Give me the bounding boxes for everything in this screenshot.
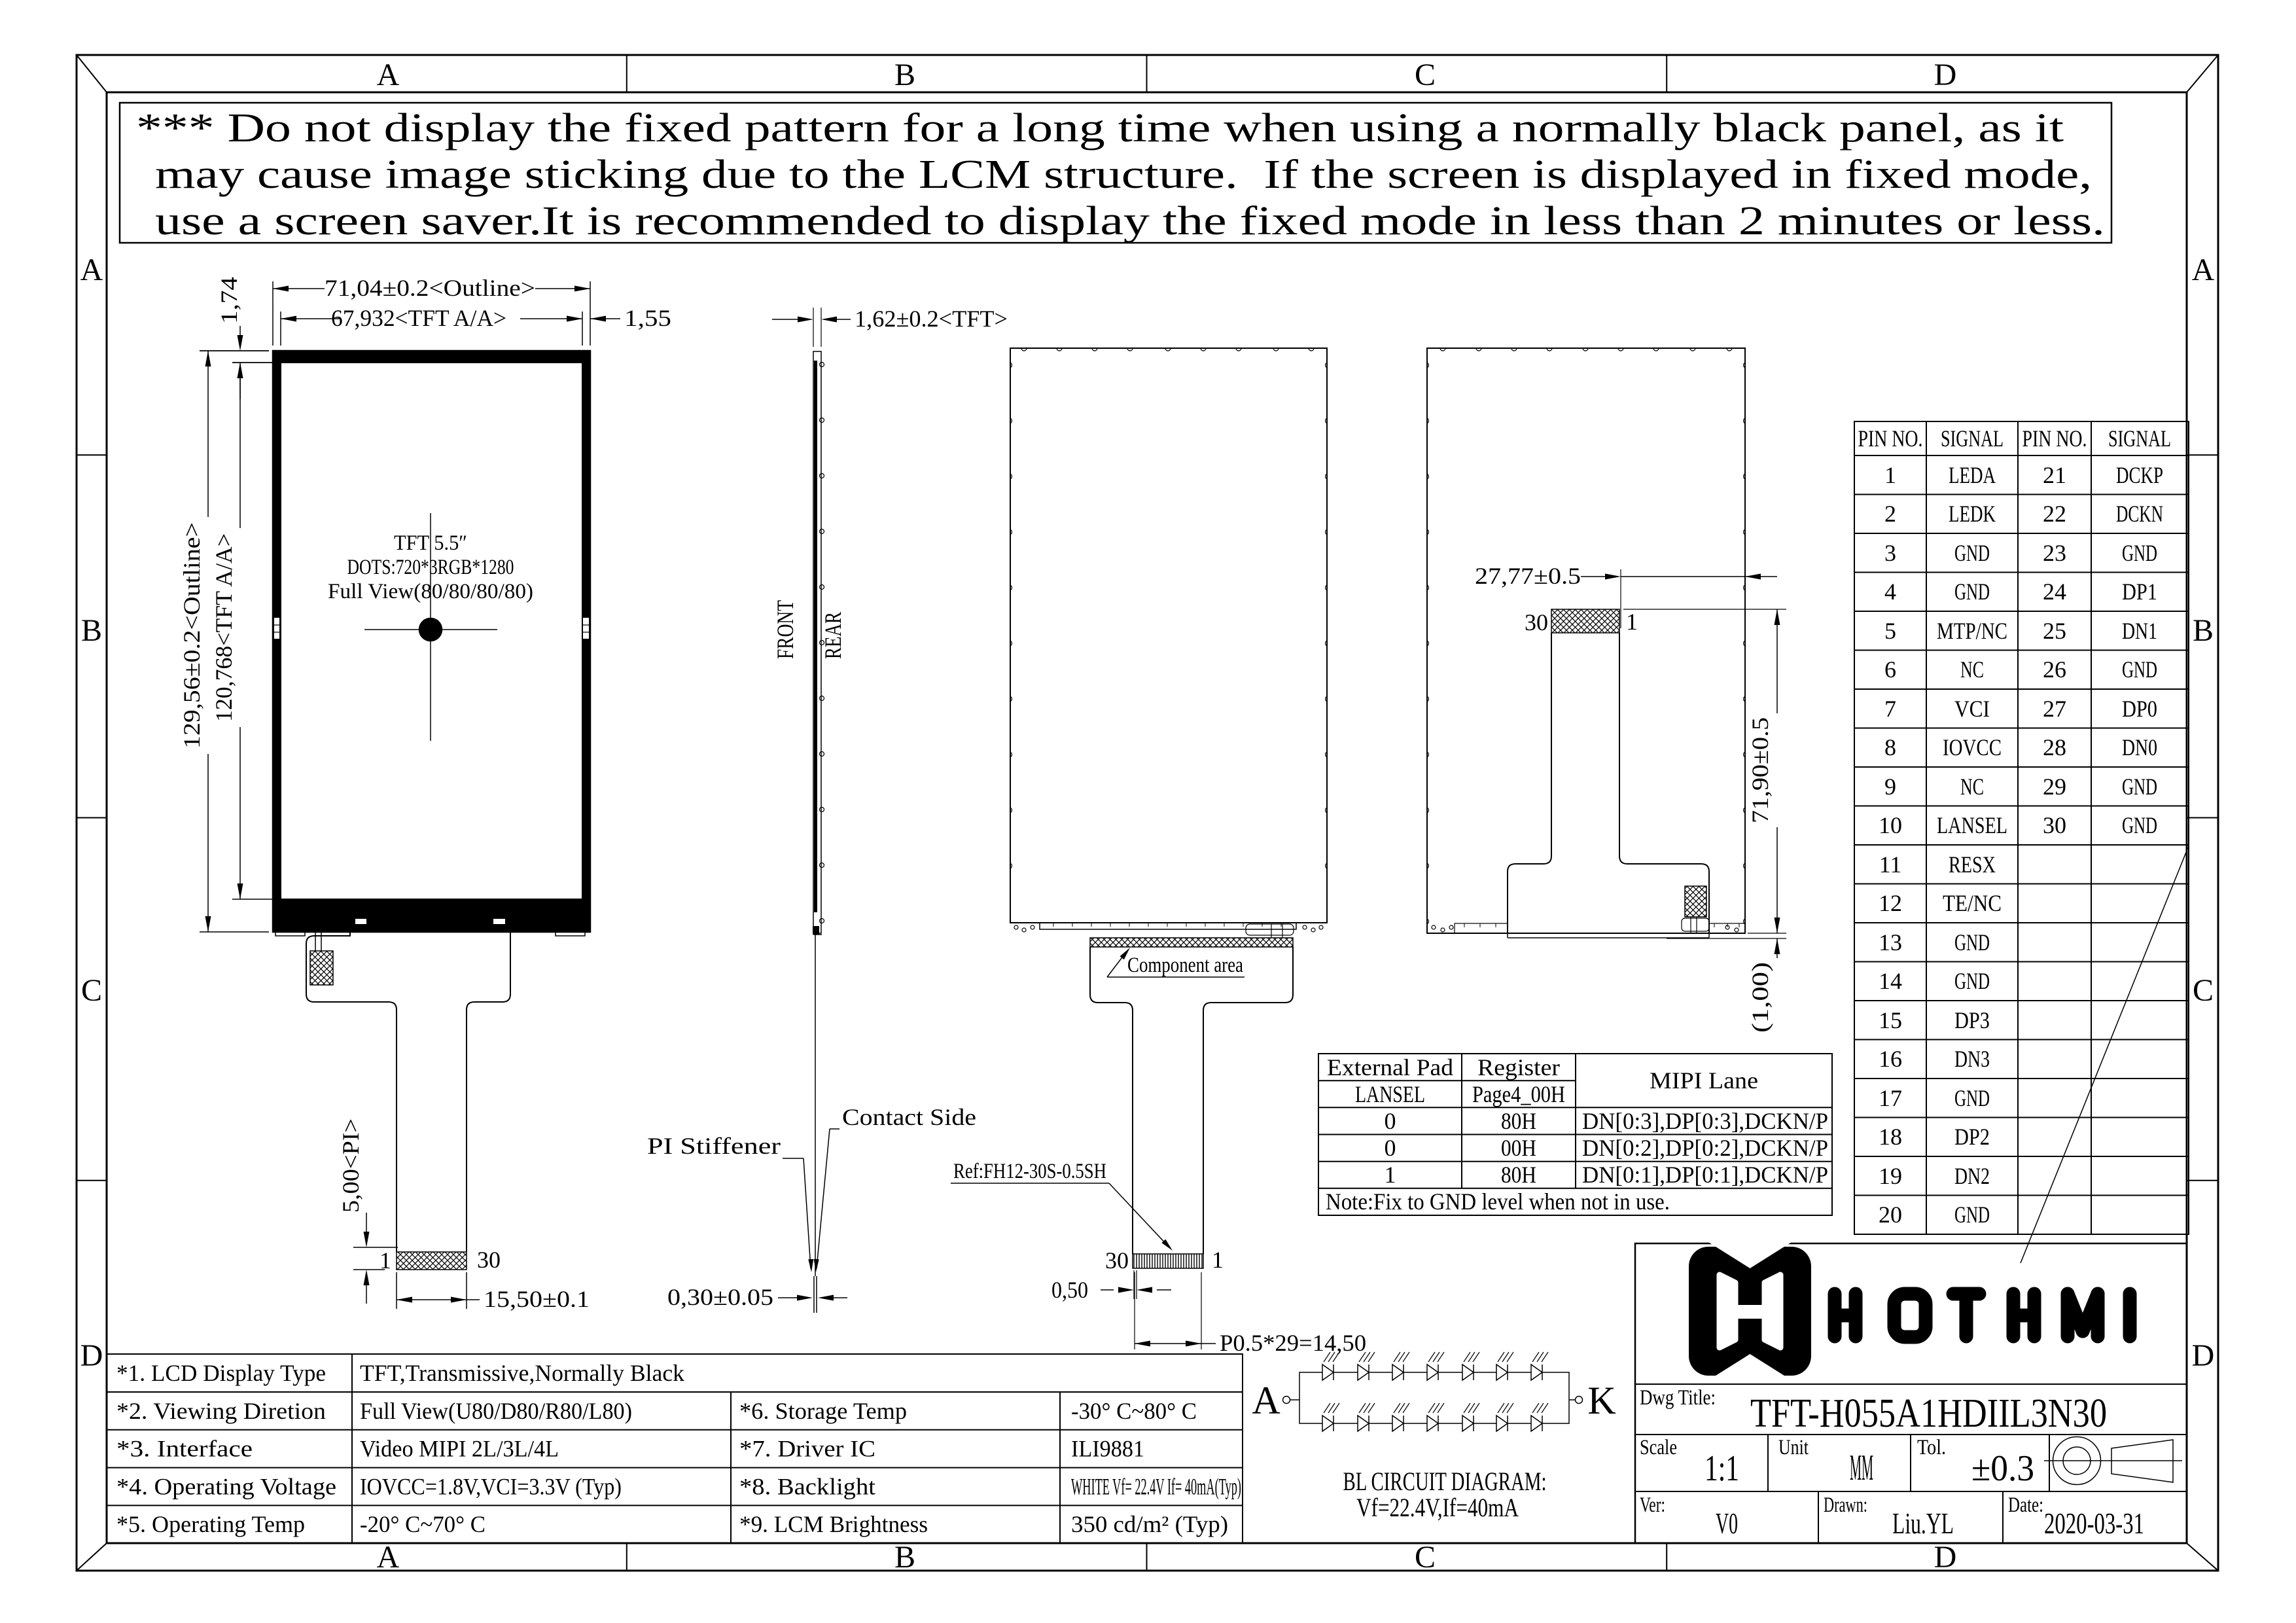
svg-text:TFT,Transmissive,Normally Blac: TFT,Transmissive,Normally Black <box>360 1360 684 1386</box>
svg-text:GND: GND <box>1954 540 1990 566</box>
svg-text:D: D <box>2192 1338 2215 1373</box>
svg-text:LEDA: LEDA <box>1949 462 1996 488</box>
svg-text:2020-03-31: 2020-03-31 <box>2044 1507 2144 1540</box>
svg-text:Video MIPI 2L/3L/4L: Video MIPI 2L/3L/4L <box>360 1436 559 1462</box>
svg-text:27,77±0.5: 27,77±0.5 <box>1475 563 1581 589</box>
svg-text:B: B <box>2193 613 2214 648</box>
svg-text:30: 30 <box>1105 1247 1129 1274</box>
svg-text:±0.3: ±0.3 <box>1971 1448 2034 1489</box>
svg-text:K: K <box>1587 1379 1616 1422</box>
svg-text:C: C <box>2193 973 2214 1008</box>
svg-text:Component area: Component area <box>1127 954 1243 977</box>
svg-text:30: 30 <box>2043 812 2066 838</box>
svg-text:22: 22 <box>2043 501 2066 527</box>
svg-text:DCKN: DCKN <box>2116 501 2163 527</box>
svg-text:26: 26 <box>2043 656 2066 683</box>
svg-text:GND: GND <box>2122 656 2157 683</box>
svg-text:MM: MM <box>1850 1448 1873 1488</box>
svg-text:ILI9881: ILI9881 <box>1071 1436 1144 1462</box>
svg-text:WHITE Vf= 22.4V If= 40mA(Typ): WHITE Vf= 22.4V If= 40mA(Typ) <box>1071 1474 1241 1500</box>
svg-text:80H: 80H <box>1501 1162 1536 1188</box>
svg-text:GND: GND <box>1954 1202 1990 1228</box>
svg-text:0: 0 <box>1385 1108 1396 1134</box>
svg-text:DP2: DP2 <box>1954 1124 1990 1150</box>
svg-text:*6. Storage Temp: *6. Storage Temp <box>739 1398 907 1424</box>
svg-text:*9. LCM Brightness: *9. LCM Brightness <box>739 1511 928 1537</box>
svg-text:(1,00): (1,00) <box>1747 962 1773 1033</box>
svg-text:IOVCC: IOVCC <box>1943 734 2002 760</box>
svg-text:C: C <box>1415 1540 1436 1575</box>
svg-text:1: 1 <box>1884 462 1896 488</box>
svg-text:17: 17 <box>1879 1085 1902 1111</box>
svg-text:DN[0:3],DP[0:3],DCKN/P: DN[0:3],DP[0:3],DCKN/P <box>1582 1108 1828 1134</box>
svg-text:A: A <box>2192 253 2215 287</box>
svg-text:DN1: DN1 <box>2122 618 2157 644</box>
svg-text:*8. Backlight: *8. Backlight <box>739 1474 875 1500</box>
svg-text:GND: GND <box>1954 929 1990 955</box>
svg-text:Note:Fix to GND level when not: Note:Fix to GND level when not in use. <box>1326 1188 1670 1215</box>
svg-text:Page4_00H: Page4_00H <box>1472 1081 1565 1107</box>
svg-text:67,932<TFT A/A>: 67,932<TFT A/A> <box>331 305 506 331</box>
svg-text:15,50±0.1: 15,50±0.1 <box>484 1286 590 1312</box>
svg-text:00H: 00H <box>1501 1135 1536 1161</box>
svg-text:A: A <box>377 1540 400 1575</box>
svg-text:A: A <box>377 58 400 92</box>
svg-text:DCKP: DCKP <box>2116 462 2163 488</box>
svg-text:20: 20 <box>1879 1202 1902 1228</box>
svg-text:REAR: REAR <box>820 612 846 659</box>
svg-text:28: 28 <box>2043 734 2066 760</box>
svg-text:B: B <box>894 1540 915 1575</box>
svg-text:25: 25 <box>2043 618 2066 644</box>
svg-text:*3. Interface: *3. Interface <box>116 1436 253 1462</box>
svg-text:MIPI Lane: MIPI Lane <box>1650 1067 1758 1094</box>
svg-text:5,00<PI>: 5,00<PI> <box>338 1118 364 1213</box>
svg-text:Dwg Title:: Dwg Title: <box>1640 1386 1716 1410</box>
svg-text:LANSEL: LANSEL <box>1937 812 2007 838</box>
svg-text:*1. LCD Display Type: *1. LCD Display Type <box>116 1360 326 1386</box>
svg-text:may cause image sticking due t: may cause image sticking due to the LCM … <box>155 152 2092 197</box>
svg-text:DN[0:2],DP[0:2],DCKN/P: DN[0:2],DP[0:2],DCKN/P <box>1582 1135 1828 1161</box>
svg-text:GND: GND <box>1954 579 1990 605</box>
svg-text:DOTS:720*3RGB*1280: DOTS:720*3RGB*1280 <box>347 556 514 579</box>
svg-text:30: 30 <box>1525 609 1548 635</box>
svg-text:DN3: DN3 <box>1954 1046 1990 1072</box>
svg-text:1: 1 <box>1212 1247 1224 1273</box>
svg-text:*5. Operating Temp: *5. Operating Temp <box>116 1511 305 1537</box>
svg-text:30: 30 <box>477 1247 501 1273</box>
svg-text:NC: NC <box>1960 656 1984 683</box>
svg-text:A: A <box>80 253 103 287</box>
svg-text:Contact Side: Contact Side <box>842 1104 976 1130</box>
svg-text:3: 3 <box>1884 540 1896 566</box>
svg-text:LANSEL: LANSEL <box>1355 1081 1425 1107</box>
svg-text:PIN NO.: PIN NO. <box>2022 425 2087 452</box>
svg-text:B: B <box>81 613 102 648</box>
svg-text:A: A <box>1252 1379 1280 1422</box>
svg-text:18: 18 <box>1879 1124 1902 1150</box>
svg-text:GND: GND <box>1954 968 1990 994</box>
svg-text:24: 24 <box>2043 579 2066 605</box>
svg-text:P0.5*29=14,50: P0.5*29=14,50 <box>1220 1330 1366 1356</box>
svg-text:NC: NC <box>1960 774 1984 800</box>
svg-text:BL CIRCUIT DIAGRAM:: BL CIRCUIT DIAGRAM: <box>1343 1467 1547 1496</box>
svg-text:C: C <box>1415 58 1436 92</box>
svg-text:4: 4 <box>1884 579 1896 605</box>
svg-text:DN2: DN2 <box>1954 1163 1990 1189</box>
svg-text:Ref:FH12-30S-0.5SH: Ref:FH12-30S-0.5SH <box>953 1160 1106 1183</box>
svg-text:1,55: 1,55 <box>624 305 671 331</box>
svg-text:FRONT: FRONT <box>772 600 798 659</box>
svg-text:*** Do not display the fixed p: *** Do not display the fixed pattern for… <box>136 106 2064 151</box>
svg-text:Ver:: Ver: <box>1640 1493 1665 1517</box>
svg-text:LEDK: LEDK <box>1949 501 1996 527</box>
svg-text:0,30±0.05: 0,30±0.05 <box>667 1284 773 1310</box>
svg-text:DN0: DN0 <box>2122 734 2157 760</box>
svg-text:12: 12 <box>1879 890 1902 916</box>
svg-text:GND: GND <box>2122 540 2157 566</box>
svg-text:1: 1 <box>1626 609 1638 635</box>
svg-text:TFT 5.5″: TFT 5.5″ <box>394 531 467 555</box>
svg-text:13: 13 <box>1879 929 1902 955</box>
svg-text:use a screen saver.It is recom: use a screen saver.It is recommended to … <box>155 199 2105 243</box>
svg-text:27: 27 <box>2043 696 2066 722</box>
svg-text:D: D <box>80 1338 103 1373</box>
svg-text:C: C <box>81 973 102 1008</box>
svg-text:21: 21 <box>2043 462 2066 488</box>
svg-text:14: 14 <box>1879 968 1902 994</box>
svg-text:9: 9 <box>1884 774 1896 800</box>
svg-text:DP1: DP1 <box>2122 579 2157 605</box>
svg-text:Full View(U80/D80/R80/L80): Full View(U80/D80/R80/L80) <box>360 1398 632 1424</box>
svg-text:MTP/NC: MTP/NC <box>1937 618 2007 644</box>
svg-text:GND: GND <box>2122 774 2157 800</box>
svg-text:Drawn:: Drawn: <box>1824 1493 1867 1517</box>
svg-text:SIGNAL: SIGNAL <box>2108 425 2171 452</box>
svg-text:DP3: DP3 <box>1954 1007 1990 1033</box>
svg-text:15: 15 <box>1879 1007 1902 1033</box>
svg-text:Vf=22.4V,If=40mA: Vf=22.4V,If=40mA <box>1356 1493 1519 1522</box>
svg-text:V0: V0 <box>1716 1507 1738 1540</box>
svg-text:29: 29 <box>2043 774 2066 800</box>
svg-text:-30° C~80° C: -30° C~80° C <box>1071 1398 1197 1424</box>
svg-text:*4. Operating Voltage: *4. Operating Voltage <box>116 1474 336 1500</box>
svg-text:120,768<TFT A/A>: 120,768<TFT A/A> <box>211 533 237 722</box>
svg-text:350 cd/m² (Typ): 350 cd/m² (Typ) <box>1071 1511 1228 1537</box>
svg-text:VCI: VCI <box>1954 696 1990 722</box>
svg-text:16: 16 <box>1879 1046 1902 1072</box>
svg-text:Unit: Unit <box>1778 1436 1809 1459</box>
svg-text:*7. Driver IC: *7. Driver IC <box>739 1436 875 1462</box>
svg-text:0: 0 <box>1385 1135 1396 1161</box>
svg-text:Scale: Scale <box>1640 1436 1677 1459</box>
svg-text:DN[0:1],DP[0:1],DCKN/P: DN[0:1],DP[0:1],DCKN/P <box>1582 1162 1828 1188</box>
svg-text:SIGNAL: SIGNAL <box>1941 425 2004 452</box>
svg-text:71,04±0.2<Outline>: 71,04±0.2<Outline> <box>325 275 535 301</box>
svg-text:0,50: 0,50 <box>1051 1277 1088 1303</box>
svg-text:RESX: RESX <box>1949 851 1996 878</box>
svg-text:External Pad: External Pad <box>1327 1054 1453 1080</box>
svg-text:GND: GND <box>2122 812 2157 838</box>
svg-text:1:1: 1:1 <box>1704 1448 1739 1489</box>
svg-text:PIN NO.: PIN NO. <box>1858 425 1923 452</box>
svg-text:Full View(80/80/80/80): Full View(80/80/80/80) <box>328 580 533 603</box>
svg-text:7: 7 <box>1884 696 1896 722</box>
svg-text:80H: 80H <box>1501 1108 1536 1134</box>
svg-text:*2. Viewing Diretion: *2. Viewing Diretion <box>116 1398 326 1424</box>
svg-text:5: 5 <box>1884 618 1896 644</box>
svg-text:1,62±0.2<TFT>: 1,62±0.2<TFT> <box>855 306 1008 332</box>
svg-text:IOVCC=1.8V,VCI=3.3V (Typ): IOVCC=1.8V,VCI=3.3V (Typ) <box>360 1474 622 1500</box>
svg-text:TE/NC: TE/NC <box>1943 890 2002 916</box>
svg-text:2: 2 <box>1884 501 1896 527</box>
svg-text:11: 11 <box>1879 851 1902 878</box>
svg-text:129,56±0.2<Outline>: 129,56±0.2<Outline> <box>179 522 205 749</box>
svg-text:23: 23 <box>2043 540 2066 566</box>
svg-text:DP0: DP0 <box>2122 696 2157 722</box>
svg-text:PI Stiffener: PI Stiffener <box>647 1133 781 1159</box>
svg-text:TFT-H055A1HDIIL3N30: TFT-H055A1HDIIL3N30 <box>1750 1391 2107 1436</box>
svg-text:Tol.: Tol. <box>1917 1436 1946 1459</box>
svg-text:19: 19 <box>1879 1163 1902 1189</box>
svg-text:D: D <box>1934 58 1957 92</box>
svg-text:GND: GND <box>1954 1085 1990 1111</box>
svg-text:Register: Register <box>1477 1054 1560 1080</box>
svg-text:Liu.YL: Liu.YL <box>1892 1507 1954 1540</box>
svg-text:10: 10 <box>1879 812 1902 838</box>
svg-text:1: 1 <box>1385 1162 1396 1188</box>
svg-text:Date:: Date: <box>2008 1493 2043 1517</box>
svg-text:8: 8 <box>1884 734 1896 760</box>
svg-text:6: 6 <box>1884 656 1896 683</box>
svg-text:B: B <box>894 58 915 92</box>
svg-text:71,90±0.5: 71,90±0.5 <box>1747 717 1773 823</box>
svg-text:D: D <box>1934 1540 1957 1575</box>
svg-text:1,74: 1,74 <box>216 277 242 324</box>
svg-text:-20° C~70° C: -20° C~70° C <box>360 1511 486 1537</box>
